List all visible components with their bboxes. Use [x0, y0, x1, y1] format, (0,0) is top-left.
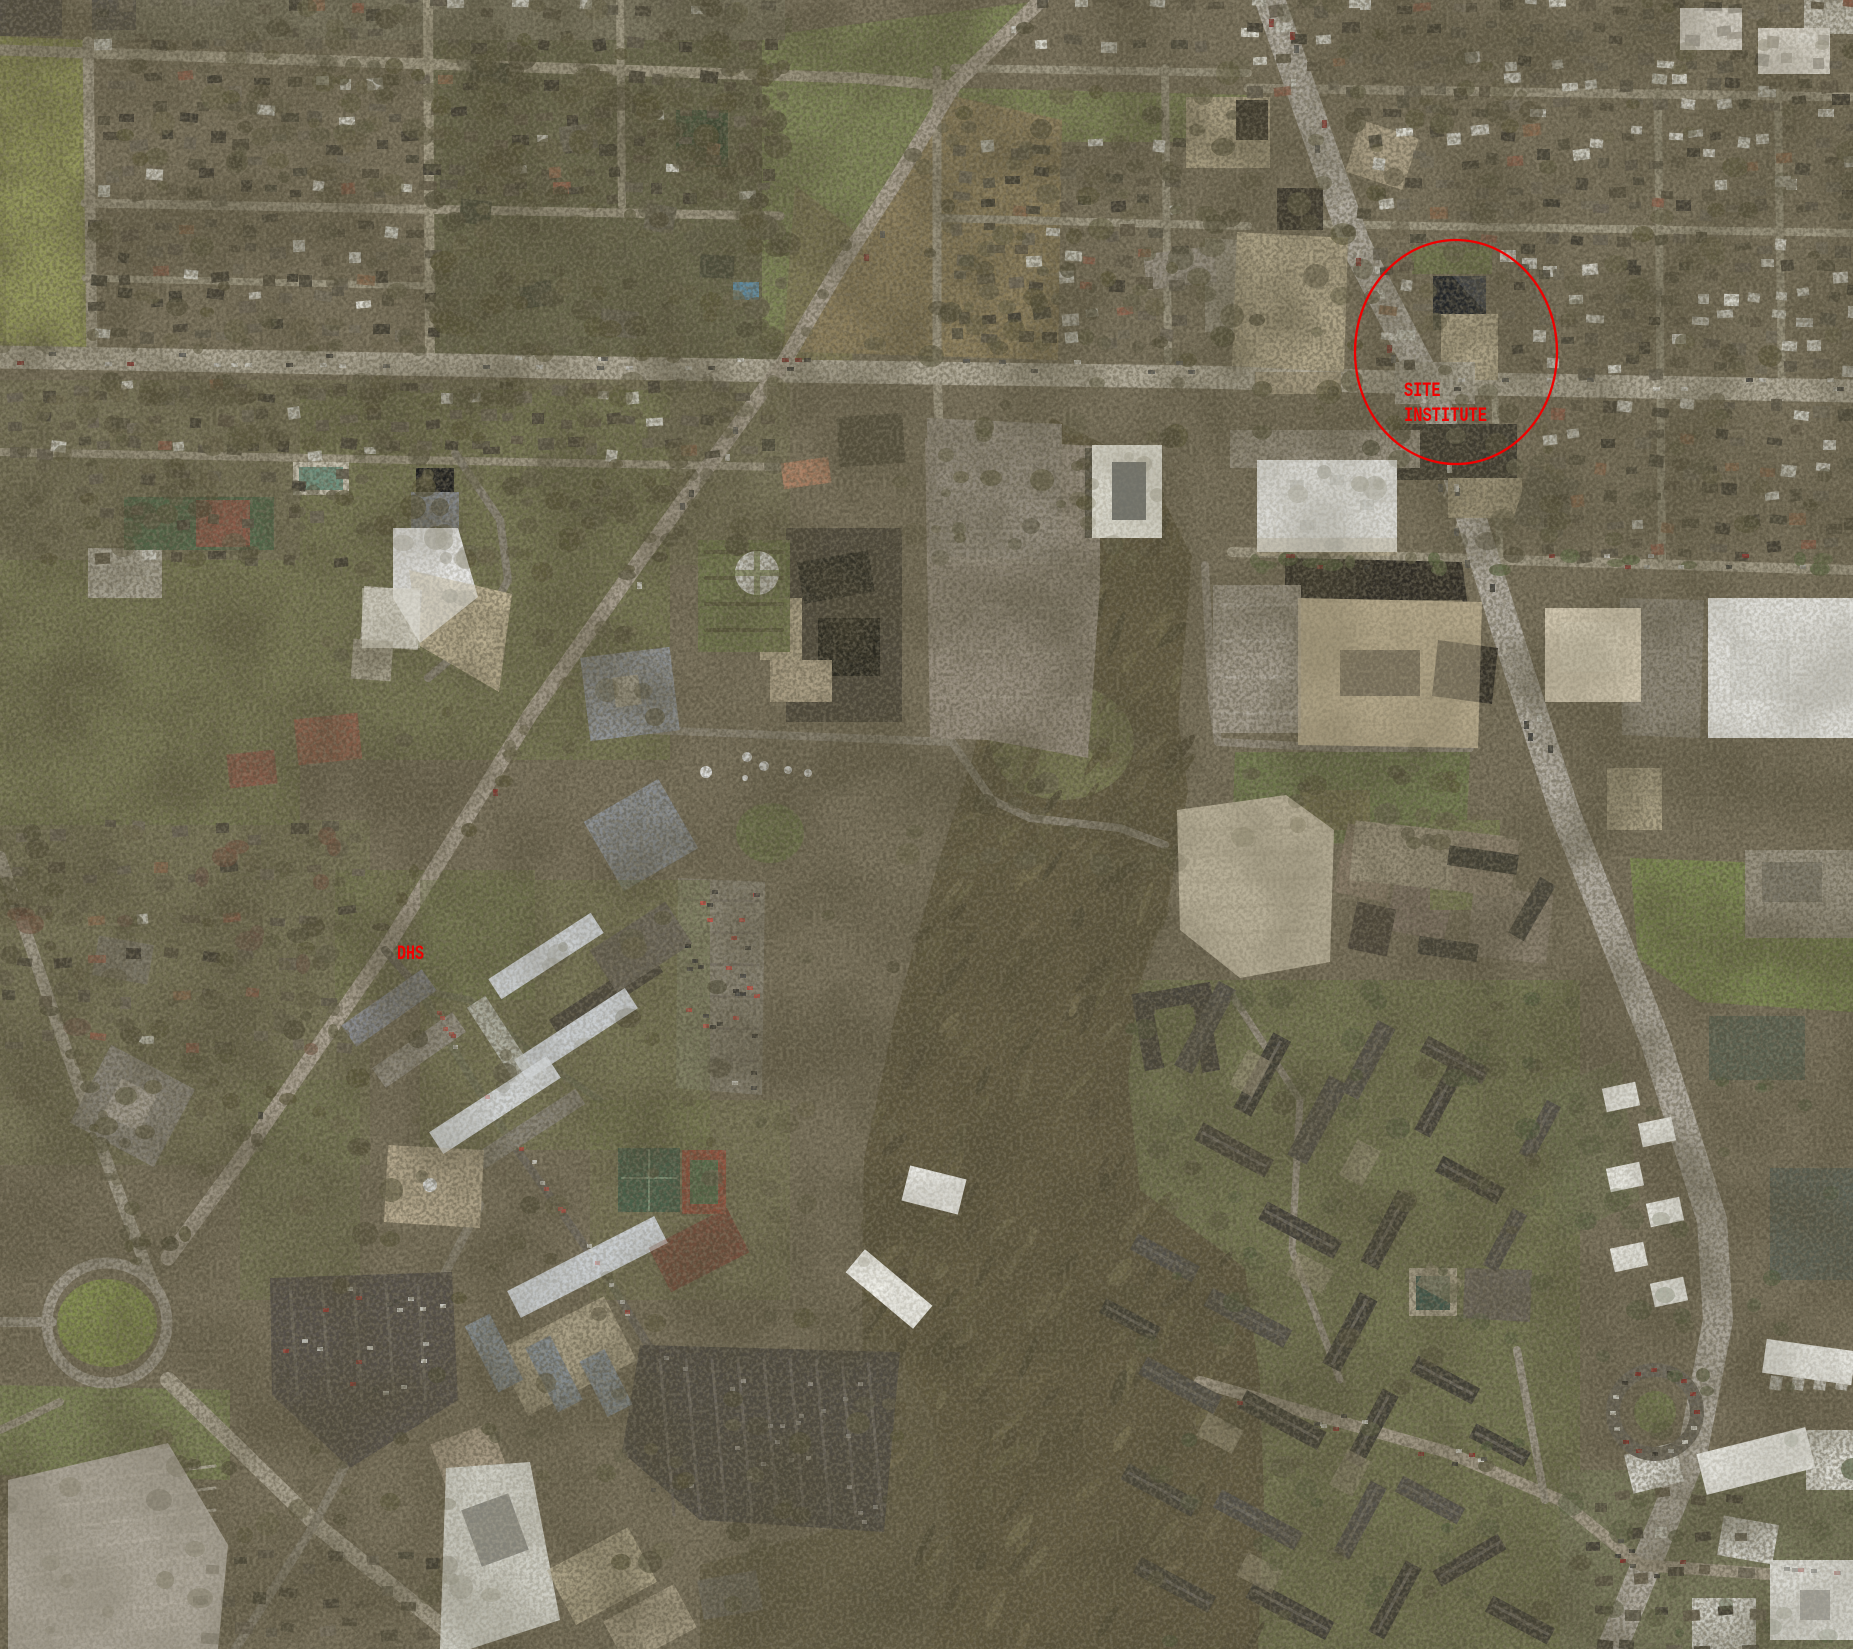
svg-text:INSTITUTE: INSTITUTE [1404, 405, 1487, 428]
svg-text:DHS: DHS [397, 943, 424, 966]
svg-text:SITE: SITE [1404, 380, 1441, 403]
